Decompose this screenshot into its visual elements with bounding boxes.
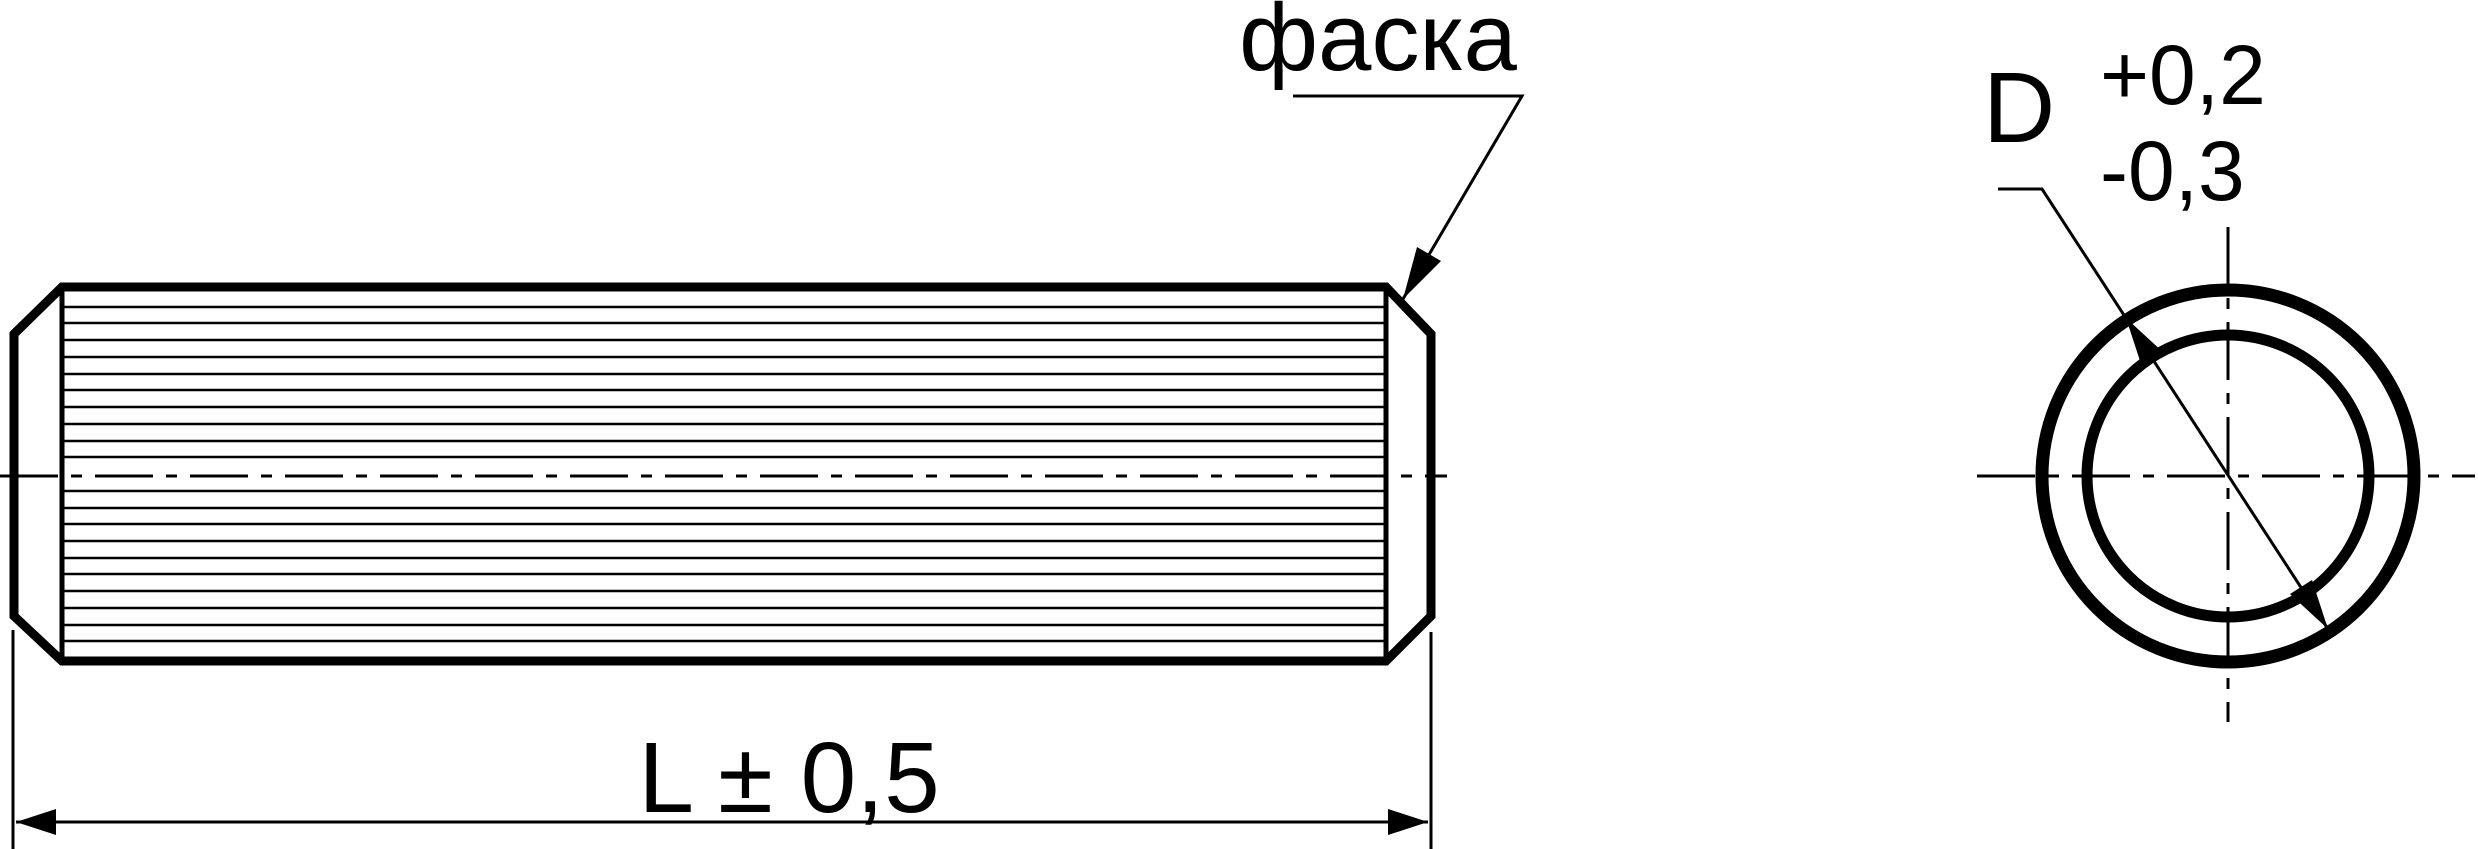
diameter-upper-tolerance-label: +0,2	[2100, 28, 2266, 122]
diameter-letter-label: D	[1983, 52, 2055, 164]
dowel-pin-drawing: фаска L ± 0,5 D +0,2 -0,3	[0, 0, 2478, 849]
diameter-lower-tolerance-label: -0,3	[2100, 124, 2245, 218]
length-dimension-label: L ± 0,5	[638, 722, 939, 834]
chamfer-label: фаска	[1239, 0, 1517, 91]
technical-drawing-canvas: фаска L ± 0,5 D +0,2 -0,3	[0, 0, 2478, 849]
